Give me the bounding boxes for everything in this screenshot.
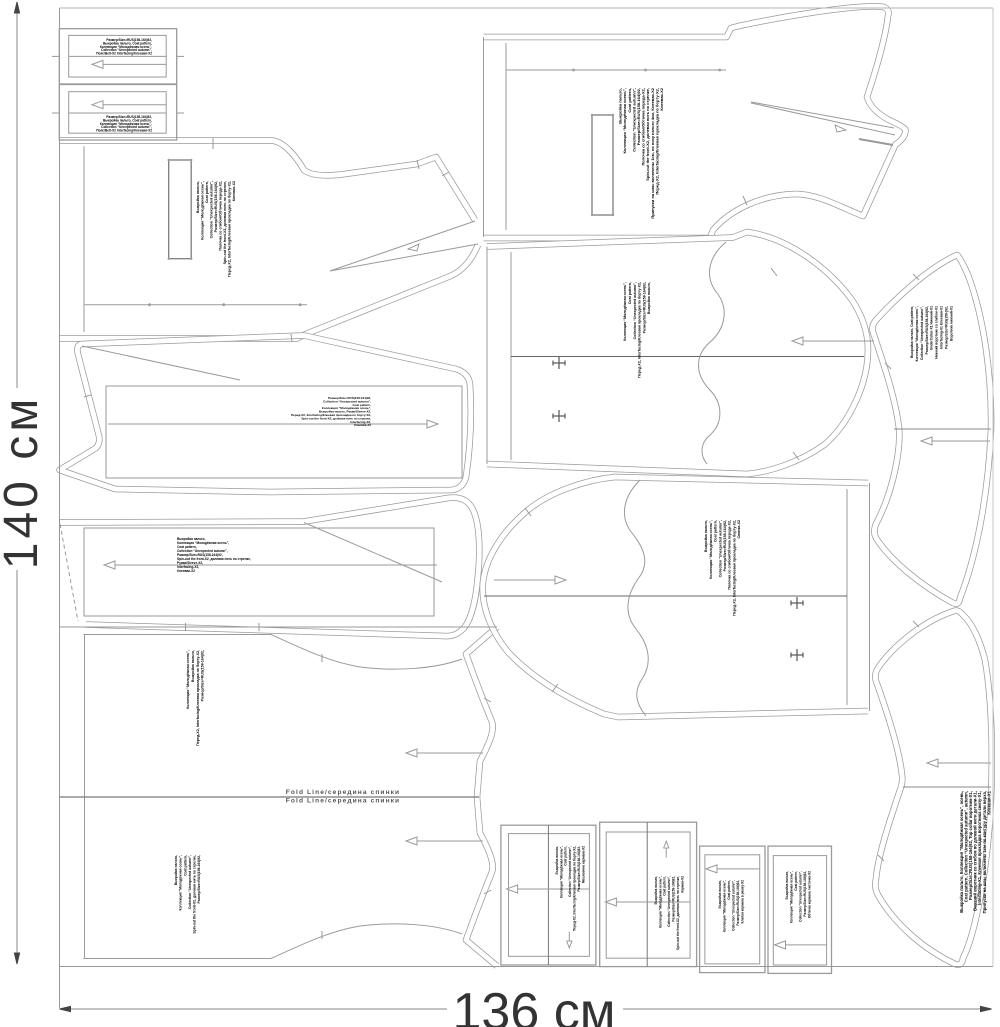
svg-text:140 см: 140 см: [0, 395, 48, 569]
svg-text:Выкройка пальто, Коллекция “Мо: Выкройка пальто, Коллекция “Молодёжная о…: [959, 790, 992, 913]
svg-text:136 см: 136 см: [453, 983, 616, 1027]
svg-text:Fold Line/середина спинки: Fold Line/середина спинки: [286, 797, 400, 804]
svg-text:Размер/Size=RUS(158-164)92,Вык: Размер/Size=RUS(158-164)92,Выкройка паль…: [96, 115, 152, 133]
svg-text:Fold Line/середина спинки: Fold Line/середина спинки: [286, 789, 400, 796]
svg-text:Выкройка пальто,Коллекция “Мол: Выкройка пальто,Коллекция “Молодёжная ос…: [785, 871, 812, 923]
svg-text:Размер/Size=RUS(158-164)92,Вык: Размер/Size=RUS(158-164)92,Выкройка паль…: [96, 38, 152, 56]
svg-text:Выкройка пальто,Коллекция “Мол: Выкройка пальто,Коллекция “Молодёжная ос…: [718, 880, 745, 932]
